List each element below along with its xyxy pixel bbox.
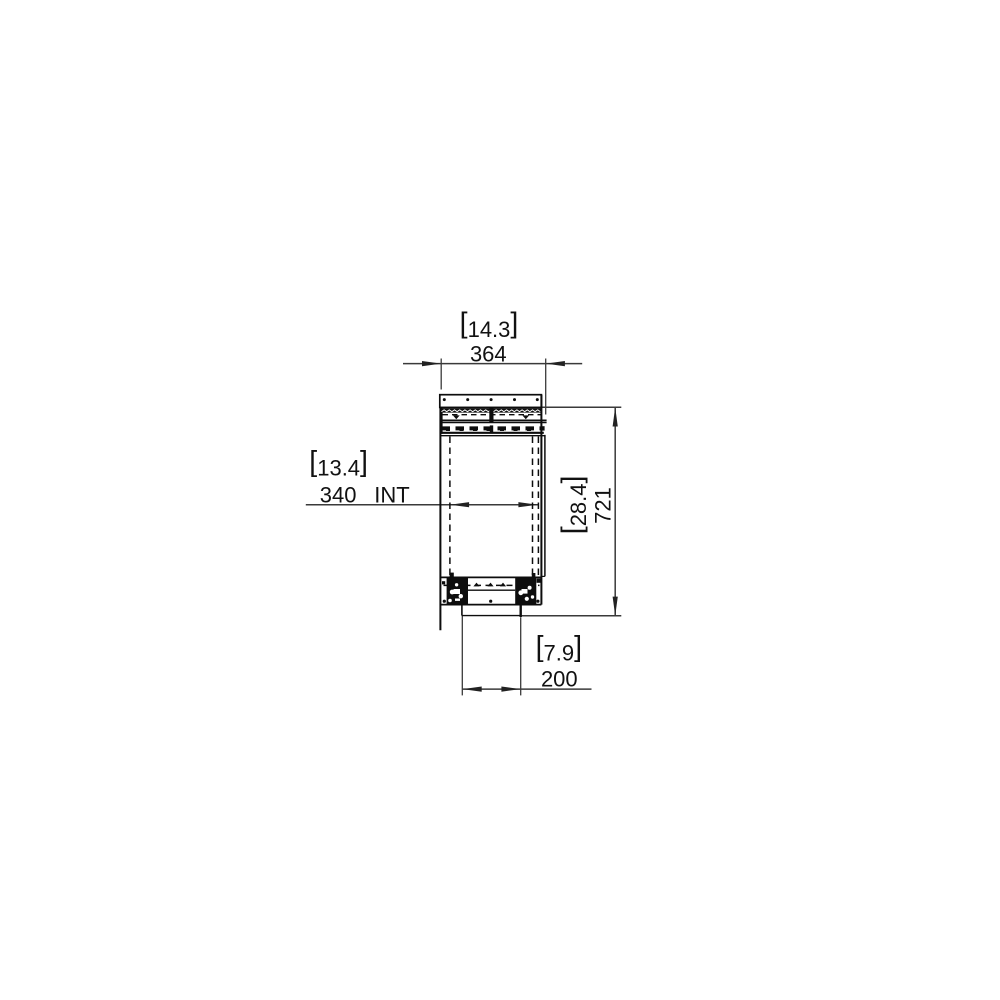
svg-text:INT: INT — [374, 482, 409, 507]
svg-text:340: 340 — [320, 482, 357, 507]
svg-text:721: 721 — [591, 487, 616, 524]
svg-text:200: 200 — [541, 667, 578, 692]
svg-text:364: 364 — [470, 341, 507, 366]
